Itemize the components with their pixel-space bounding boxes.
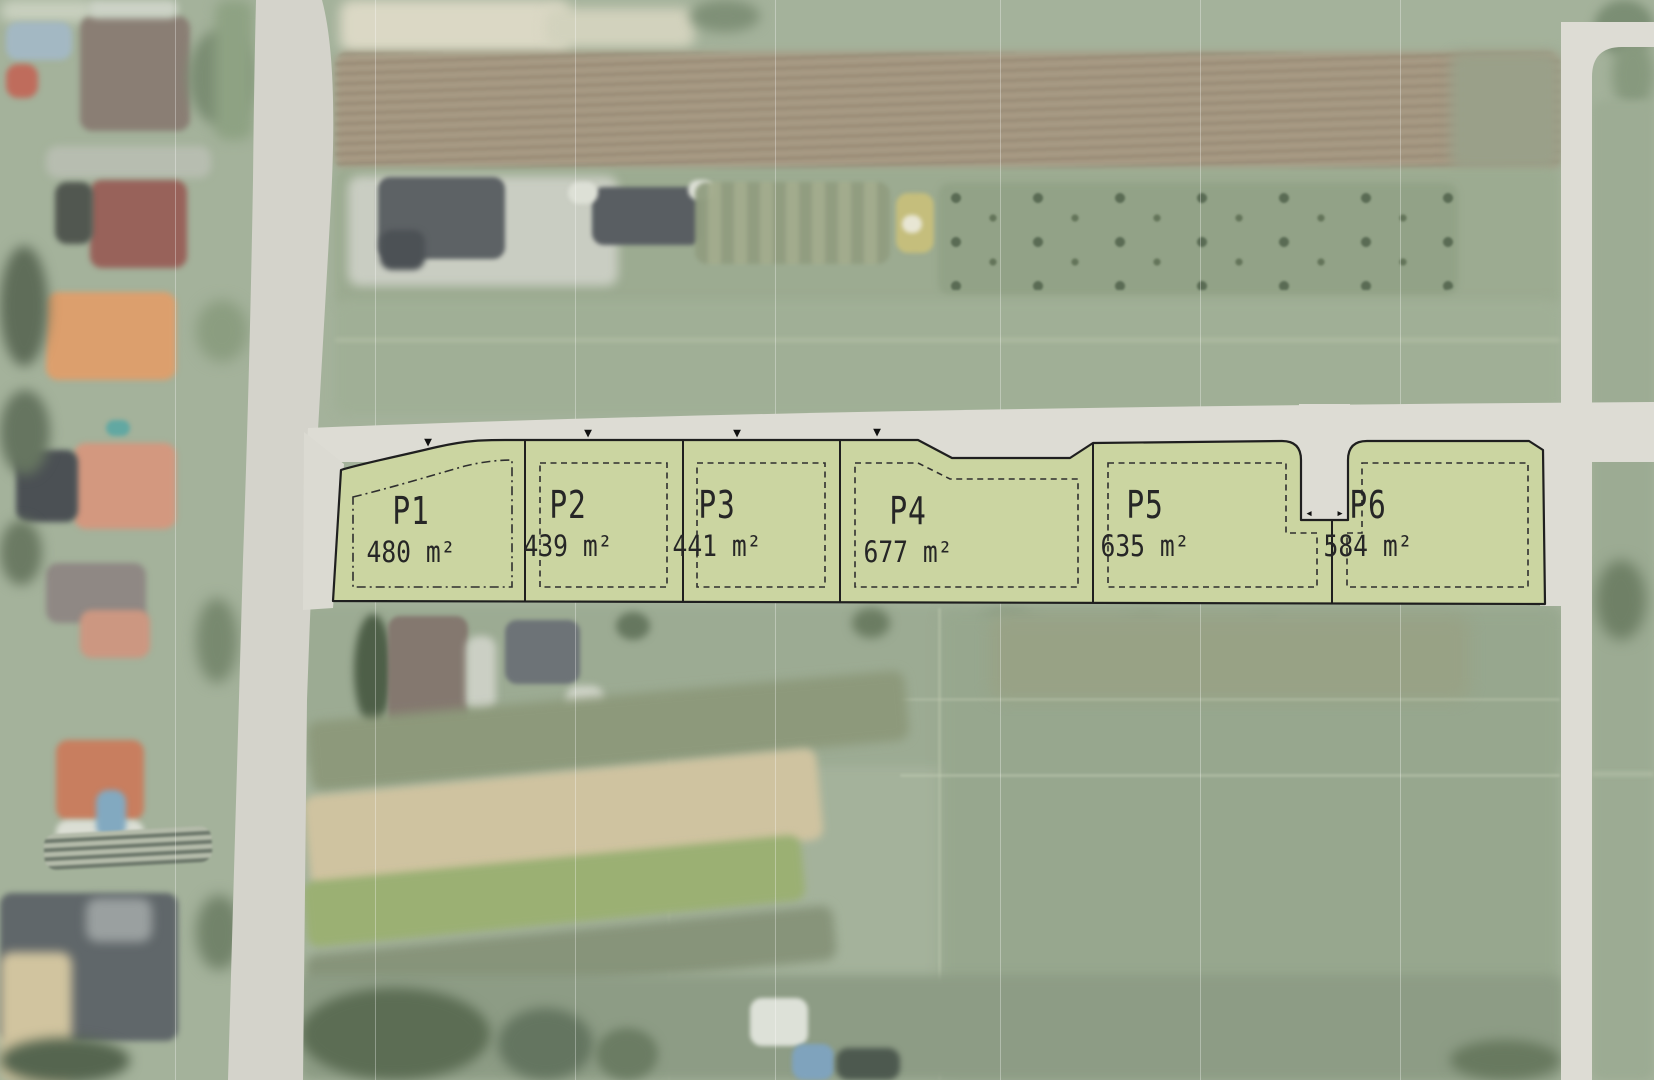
plot-id: P5 [1104,486,1186,524]
plot-area: 441 m² [672,532,761,561]
plot-label-p2: P2 439 m² [516,486,621,561]
plot-area: 584 m² [1323,532,1412,561]
plot-area: 677 m² [863,538,952,567]
plot-label-p3: P3 441 m² [665,486,770,561]
down-triangle-icon: ▼ [424,436,432,449]
plot-label-p4: P4 677 m² [856,492,961,567]
down-triangle-icon: ▼ [873,426,881,439]
plot-id: P3 [676,486,758,524]
road-right [1561,22,1654,1080]
plot-area: 439 m² [523,532,612,561]
down-triangle-icon: ▼ [584,427,592,440]
plot-id: P6 [1327,486,1409,524]
plot-id: P1 [370,492,452,530]
plot-id: P4 [867,492,949,530]
plot-label-p1: P1 480 m² [359,492,464,567]
plot-label-p5: P5 635 m² [1093,486,1198,561]
plot-map-canvas: ▼ ▼ ▼ ▼ ◂ ▸ P1 480 m² P2 439 m² P3 441 m… [0,0,1654,1080]
plot-id: P2 [527,486,609,524]
plot-label-p6: P6 584 m² [1316,486,1421,561]
plot-area: 480 m² [366,538,455,567]
down-triangle-icon: ▼ [733,427,741,440]
left-triangle-icon: ◂ [1305,507,1313,520]
plot-area: 635 m² [1100,532,1189,561]
